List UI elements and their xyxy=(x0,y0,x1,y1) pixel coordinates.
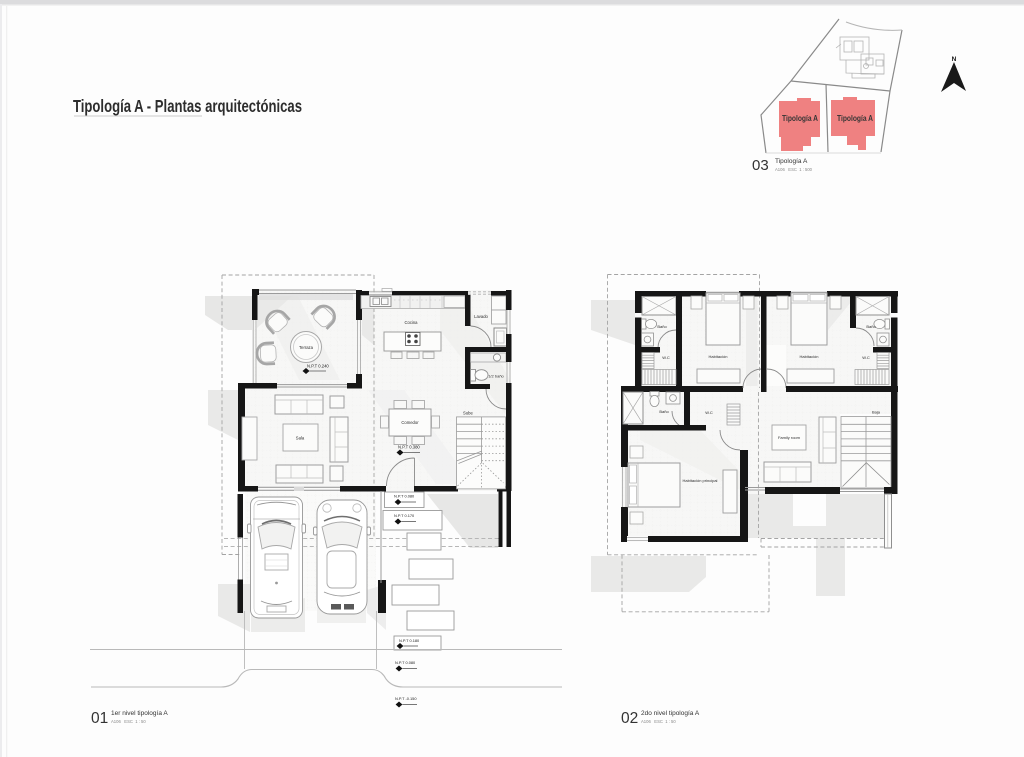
svg-text:Habitación: Habitación xyxy=(800,354,819,359)
svg-text:03: 03 xyxy=(752,157,769,174)
svg-text:N.P.T 0.170: N.P.T 0.170 xyxy=(394,513,415,518)
svg-text:Baño: Baño xyxy=(866,324,876,329)
svg-text:W.C: W.C xyxy=(662,355,670,360)
svg-text:N.P.T 0.380: N.P.T 0.380 xyxy=(398,445,420,450)
svg-text:Baño: Baño xyxy=(659,409,669,414)
svg-text:Terraza: Terraza xyxy=(299,345,314,350)
svg-text:Habitación principal: Habitación principal xyxy=(683,478,718,483)
svg-text:Baja: Baja xyxy=(872,410,881,415)
svg-text:02: 02 xyxy=(621,710,638,727)
svg-text:A106 ESC 1 : 50: A106 ESC 1 : 50 xyxy=(111,719,146,724)
svg-text:Tipología A - Plantas arquitec: Tipología A - Plantas arquitectónicas xyxy=(73,96,302,116)
svg-text:N.P.T 0.180: N.P.T 0.180 xyxy=(399,638,420,643)
svg-text:1er nivel tipología A: 1er nivel tipología A xyxy=(111,710,168,717)
svg-text:A106 ESC 1 : 50: A106 ESC 1 : 50 xyxy=(641,719,676,724)
svg-text:Lavado: Lavado xyxy=(474,314,488,319)
svg-text:Tipología A: Tipología A xyxy=(775,158,808,165)
svg-text:Comedor: Comedor xyxy=(401,420,419,425)
svg-text:2do nivel tipología A: 2do nivel tipología A xyxy=(641,710,700,717)
svg-text:Cocina: Cocina xyxy=(404,320,418,325)
svg-text:Tipología A: Tipología A xyxy=(782,113,818,123)
svg-text:N.P.T 0.080: N.P.T 0.080 xyxy=(395,660,416,665)
svg-text:W.C: W.C xyxy=(862,355,870,360)
svg-text:A106 ESC 1 : 500: A106 ESC 1 : 500 xyxy=(775,167,813,172)
svg-text:N: N xyxy=(952,56,957,63)
svg-text:Habitación: Habitación xyxy=(709,354,728,359)
svg-text:N.P.T -0.150: N.P.T -0.150 xyxy=(395,696,417,701)
svg-text:Sala: Sala xyxy=(296,436,305,441)
svg-text:1/2 baño: 1/2 baño xyxy=(488,374,504,379)
svg-text:Family room: Family room xyxy=(778,435,801,440)
svg-text:N.P.T 0.080: N.P.T 0.080 xyxy=(394,494,415,499)
svg-text:Tipología A: Tipología A xyxy=(837,113,873,123)
svg-text:W.C: W.C xyxy=(705,410,713,415)
svg-text:Sube: Sube xyxy=(463,411,473,416)
svg-text:N.P.T 0.240: N.P.T 0.240 xyxy=(307,364,329,369)
svg-text:Baño: Baño xyxy=(657,324,667,329)
svg-text:01: 01 xyxy=(91,710,108,727)
